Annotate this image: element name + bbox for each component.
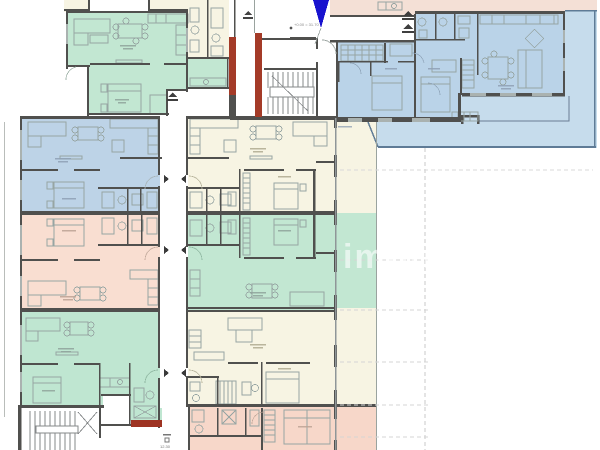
svg-text:imoti: imoti: [343, 238, 434, 276]
svg-text:12.30: 12.30: [160, 444, 171, 449]
svg-text:+0.00 = 31.70: +0.00 = 31.70: [294, 22, 319, 27]
